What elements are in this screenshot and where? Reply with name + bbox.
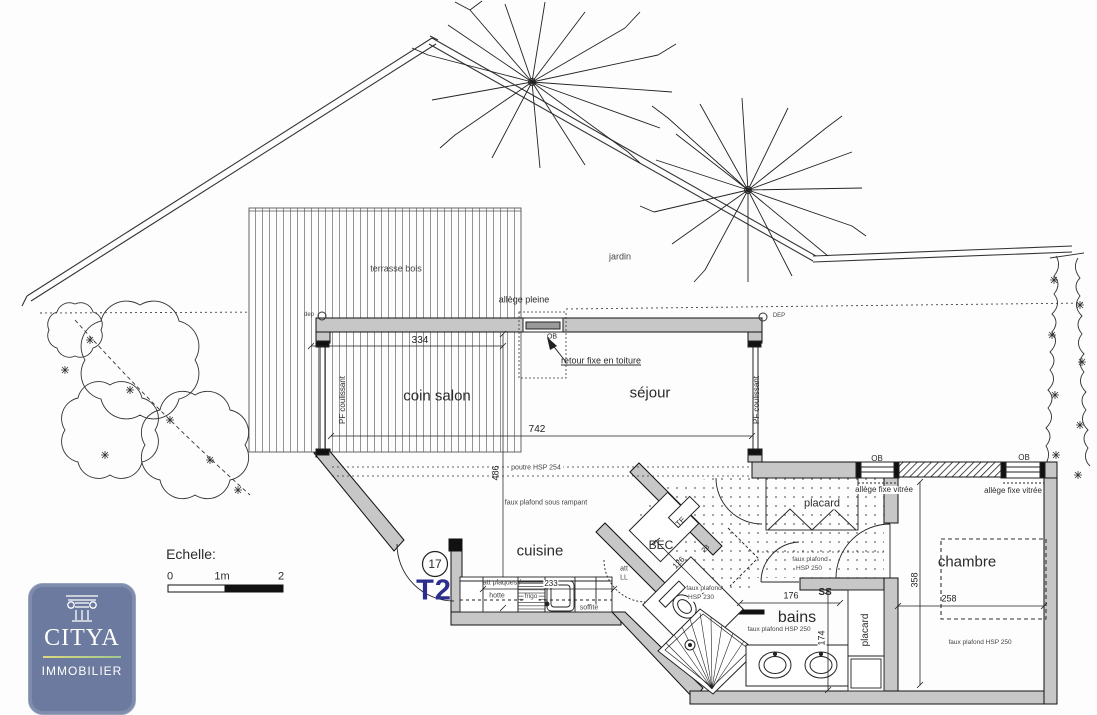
roof-overhang-line: [40, 303, 1086, 313]
chambre-faux-label: faux plafond HSP 250: [948, 640, 1011, 647]
scale-tick-0: 0: [167, 572, 173, 583]
scale-tick-2: 2: [278, 572, 284, 583]
wc-faux-label-2: HSP 230: [688, 595, 714, 602]
dim-334: 334: [412, 336, 429, 346]
logo-brand-text: CITYA: [44, 625, 120, 652]
hall-faux-label-1: faux plafond: [792, 557, 827, 564]
scale-tick-1m: 1m: [214, 572, 229, 583]
logo-divider: [43, 656, 121, 658]
room-label-chambre: chambre: [938, 555, 996, 570]
room-label-bains: bains: [778, 610, 816, 626]
ob-top-label: OB: [547, 334, 557, 341]
allege-fixe-right-label: allège fixe vitrée: [984, 487, 1042, 495]
hotte-label: hotte: [489, 593, 505, 600]
hedge-icon: [1044, 253, 1090, 479]
dim-258: 258: [941, 595, 956, 604]
soffite-label: soffite: [580, 605, 599, 612]
dim-486: 486: [492, 465, 501, 480]
ob-right-label: OB: [1018, 454, 1030, 462]
att-ll-label-2: LL: [620, 575, 628, 582]
faux-plafond-rampant-label: faux plafond sous rampant: [505, 500, 588, 507]
unit-type: T2: [416, 577, 452, 606]
garden-fence: [22, 36, 1072, 306]
scale-bar: [168, 585, 283, 592]
room-label-coin-salon: coin salon: [403, 389, 471, 404]
dim-233: 233: [543, 580, 558, 588]
citya-logo: CITYA IMMOBILIER: [28, 583, 136, 715]
ob-left-label: OB: [871, 455, 883, 463]
allege-pleine-label: allège pleine: [499, 296, 550, 305]
dim-358: 358: [911, 572, 920, 587]
pf-coulissant-right-label: PF coulissant: [753, 376, 761, 424]
bains-faux-label: faux plafond HSP 250: [747, 627, 810, 634]
room-label-placard-entry: placard: [802, 499, 842, 510]
floor-plan-page: terrasse bois jardin dep DEP allège plei…: [0, 0, 1097, 715]
ss-label: SS: [818, 588, 831, 598]
room-label-sejour: séjour: [630, 386, 671, 401]
poutre-label: poutre HSP 254: [509, 465, 563, 472]
column-icon: [60, 593, 104, 623]
att-ll-label-1: att: [620, 566, 628, 573]
room-label-placard-bains: placard: [861, 614, 871, 647]
hall-faux-label-2: HSP 250: [796, 566, 822, 573]
scale-title: Echelle:: [166, 547, 216, 561]
room-label-cuisine: cuisine: [517, 544, 564, 559]
retour-fixe-label: retour fixe en toiture: [561, 357, 641, 366]
vanity-sinks: [746, 645, 848, 686]
unit-number: 17: [428, 558, 441, 570]
dim-742: 742: [529, 425, 546, 435]
bush-icon: [48, 301, 250, 499]
att-plaques-label: att plaques /: [483, 580, 521, 587]
pf-coulissant-left-label: PF coulissant: [339, 376, 347, 424]
wc-faux-label-1: faux plafond: [686, 586, 721, 593]
party-wall-hatched: [898, 462, 1003, 477]
tree-icon: [640, 98, 866, 282]
tree-icon: [412, 1, 676, 168]
garden-label: jardin: [609, 253, 631, 262]
allege-fixe-left-label: allège fixe vitrée: [855, 486, 913, 494]
terrace-label: terrasse bois: [370, 265, 422, 274]
downspout-right-label: DEP: [773, 313, 785, 319]
dim-176: 176: [783, 592, 798, 601]
room-label-bec: BEC: [649, 539, 674, 551]
floor-plan-drawing: [0, 0, 1097, 715]
dim-174: 174: [818, 630, 827, 645]
logo-subtitle-text: IMMOBILIER: [42, 664, 123, 678]
downspout-left-label: dep: [304, 312, 314, 318]
frigo-label: frigo: [524, 594, 539, 601]
